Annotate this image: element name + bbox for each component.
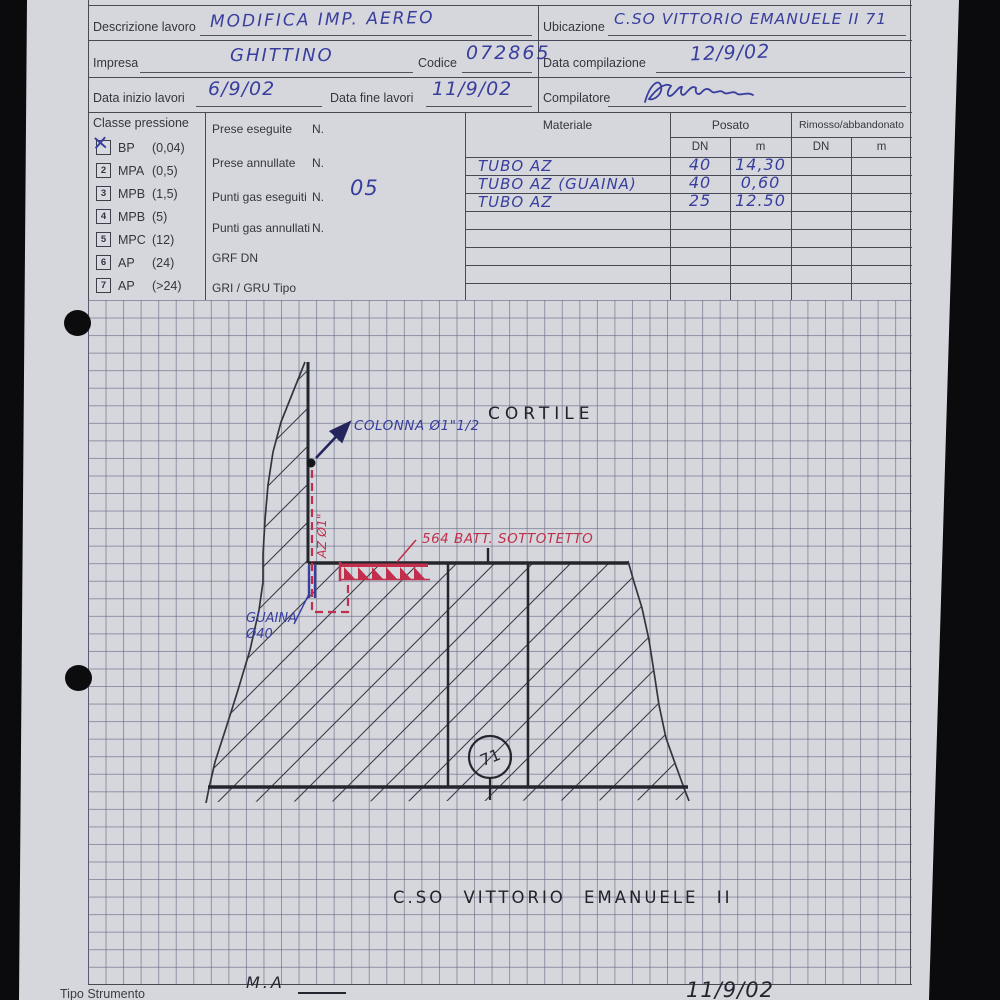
- classe-option-name: BP: [118, 141, 135, 155]
- classe-option-range: (12): [152, 233, 174, 247]
- check-x-mark: ✕: [91, 130, 109, 155]
- checkbox-ap2: 7: [96, 278, 111, 293]
- checkbox-num: 7: [101, 280, 106, 291]
- impresa-label: Impresa: [93, 56, 138, 70]
- m-cell: 12.50: [730, 191, 791, 210]
- compilatore-signature: [636, 76, 766, 108]
- divider: [608, 106, 906, 107]
- battery-hatched-bar: [340, 562, 430, 581]
- divider: [88, 112, 912, 113]
- contatori-label: GRF DN: [212, 251, 258, 265]
- contatori-label: GRI / GRU Tipo: [212, 281, 296, 295]
- materiale-cell: TUBO AZ: [478, 193, 553, 211]
- data-fine-label: Data fine lavori: [330, 91, 413, 105]
- descrizione-label: Descrizione lavoro: [93, 20, 196, 34]
- battery-leader-line: [397, 540, 416, 562]
- classe-pressione-title: Classe pressione: [93, 116, 189, 130]
- punti-gas-eseguiti-value: 05: [350, 176, 379, 200]
- divider: [205, 112, 206, 300]
- classe-option-range: (5): [152, 210, 167, 224]
- guaina-size-label: Ø40: [245, 627, 273, 642]
- punch-hole-top: [64, 310, 91, 336]
- dn-col-header: DN: [791, 141, 851, 153]
- contatori-unit: N.: [312, 122, 324, 136]
- data-fine-value: 11/9/02: [432, 78, 512, 100]
- codice-value: 072865: [466, 42, 551, 64]
- data-compilazione-label: Data compilazione: [543, 56, 646, 70]
- dn-cell: 25: [670, 191, 730, 210]
- divider: [200, 35, 532, 36]
- divider: [851, 137, 852, 300]
- codice-label: Codice: [418, 56, 457, 70]
- checkbox-mpb1: 3: [96, 186, 111, 201]
- contatori-unit: N.: [312, 190, 324, 204]
- checkbox-num: 6: [101, 257, 106, 268]
- left-boundary-line: [206, 362, 305, 803]
- m-cell: 0,60: [730, 173, 791, 192]
- divider: [140, 72, 413, 73]
- materiale-col-header: Materiale: [465, 118, 670, 132]
- footer-annotation-underline: [298, 992, 346, 994]
- checkbox-num: 4: [101, 211, 106, 222]
- colonna-label: COLONNA Ø1"1/2: [354, 418, 480, 434]
- divider: [88, 5, 912, 6]
- footer-annotation: M.A: [246, 973, 285, 992]
- riser-size-label: AZ Ø1": [314, 513, 329, 559]
- red-pipe-dashed: [312, 563, 348, 612]
- checkbox-num: 5: [101, 234, 106, 245]
- classe-option-name: MPA: [118, 164, 144, 178]
- m-cell: 14,30: [730, 155, 791, 174]
- classe-option-name: MPB: [118, 210, 145, 224]
- site-sketch: COLONNA Ø1"1/2 CORTILE AZ Ø1" 564 BATT. …: [88, 300, 912, 985]
- compilatore-label: Compilatore: [543, 91, 610, 105]
- divider: [465, 283, 912, 284]
- contatori-label: Prese eseguite: [212, 122, 292, 136]
- colonna-arrow: [316, 424, 348, 458]
- divider: [608, 35, 906, 36]
- classe-option-name: AP: [118, 279, 135, 293]
- checkbox-mpc: 5: [96, 232, 111, 247]
- scanned-work-form: Descrizione lavoro MODIFICA IMP. AEREO U…: [0, 0, 1000, 1000]
- contatori-label: Punti gas eseguiti: [212, 190, 307, 204]
- tipo-strumento-label: Tipo Strumento: [60, 987, 145, 1000]
- classe-option-range: (>24): [152, 279, 182, 293]
- classe-option-name: MPC: [118, 233, 146, 247]
- right-boundary-line: [628, 561, 689, 801]
- contatori-unit: N.: [312, 156, 324, 170]
- divider: [465, 229, 912, 230]
- street-name-label: C.SO VITTORIO EMANUELE II: [393, 888, 732, 907]
- divider: [465, 211, 912, 212]
- rimosso-col-header: Rimosso/abbandonato: [791, 119, 912, 131]
- divider: [465, 247, 912, 248]
- posato-col-header: Posato: [670, 118, 791, 132]
- divider: [426, 106, 532, 107]
- classe-option-range: (0,5): [152, 164, 178, 178]
- classe-option-range: (0,04): [152, 141, 185, 155]
- checkbox-mpa: 2: [96, 163, 111, 178]
- checkbox-num: 2: [101, 165, 106, 176]
- data-inizio-label: Data inizio lavori: [93, 91, 185, 105]
- ubicazione-label: Ubicazione: [543, 20, 605, 34]
- classe-option-name: MPB: [118, 187, 145, 201]
- divider: [656, 72, 905, 73]
- m-col-header: m: [851, 141, 912, 153]
- divider: [462, 72, 532, 73]
- divider: [670, 137, 912, 138]
- contatori-label: Punti gas annullati: [212, 221, 310, 235]
- impresa-value: GHITTINO: [230, 45, 334, 66]
- dn-cell: 40: [670, 155, 730, 174]
- footer-date: 11/9/02: [686, 978, 774, 1000]
- materiale-cell: TUBO AZ: [478, 157, 553, 175]
- classe-option-range: (1,5): [152, 187, 178, 201]
- data-compilazione-value: 12/9/02: [690, 41, 771, 66]
- guaina-label: GUAINA: [246, 611, 297, 626]
- dn-col-header: DN: [670, 141, 730, 153]
- battery-label: 564 BATT. SOTTOTETTO: [422, 531, 593, 547]
- riser-connection-dot: [307, 459, 316, 468]
- m-col-header: m: [730, 141, 791, 153]
- checkbox-num: 3: [101, 188, 106, 199]
- checkbox-ap1: 6: [96, 255, 111, 270]
- descrizione-value: MODIFICA IMP. AEREO: [210, 8, 435, 32]
- materiale-cell: TUBO AZ (GUAINA): [478, 175, 637, 193]
- ubicazione-value: C.SO VITTORIO EMANUELE II 71: [614, 10, 887, 28]
- divider: [465, 265, 912, 266]
- classe-option-range: (24): [152, 256, 174, 270]
- data-inizio-value: 6/9/02: [208, 78, 275, 100]
- divider: [465, 112, 466, 300]
- dn-cell: 40: [670, 173, 730, 192]
- contatori-unit: N.: [312, 221, 324, 235]
- classe-option-name: AP: [118, 256, 135, 270]
- contatori-label: Prese annullate: [212, 156, 295, 170]
- checkbox-mpb2: 4: [96, 209, 111, 224]
- divider: [196, 106, 322, 107]
- punch-hole-bottom: [65, 665, 92, 691]
- cortile-label: CORTILE: [488, 404, 594, 424]
